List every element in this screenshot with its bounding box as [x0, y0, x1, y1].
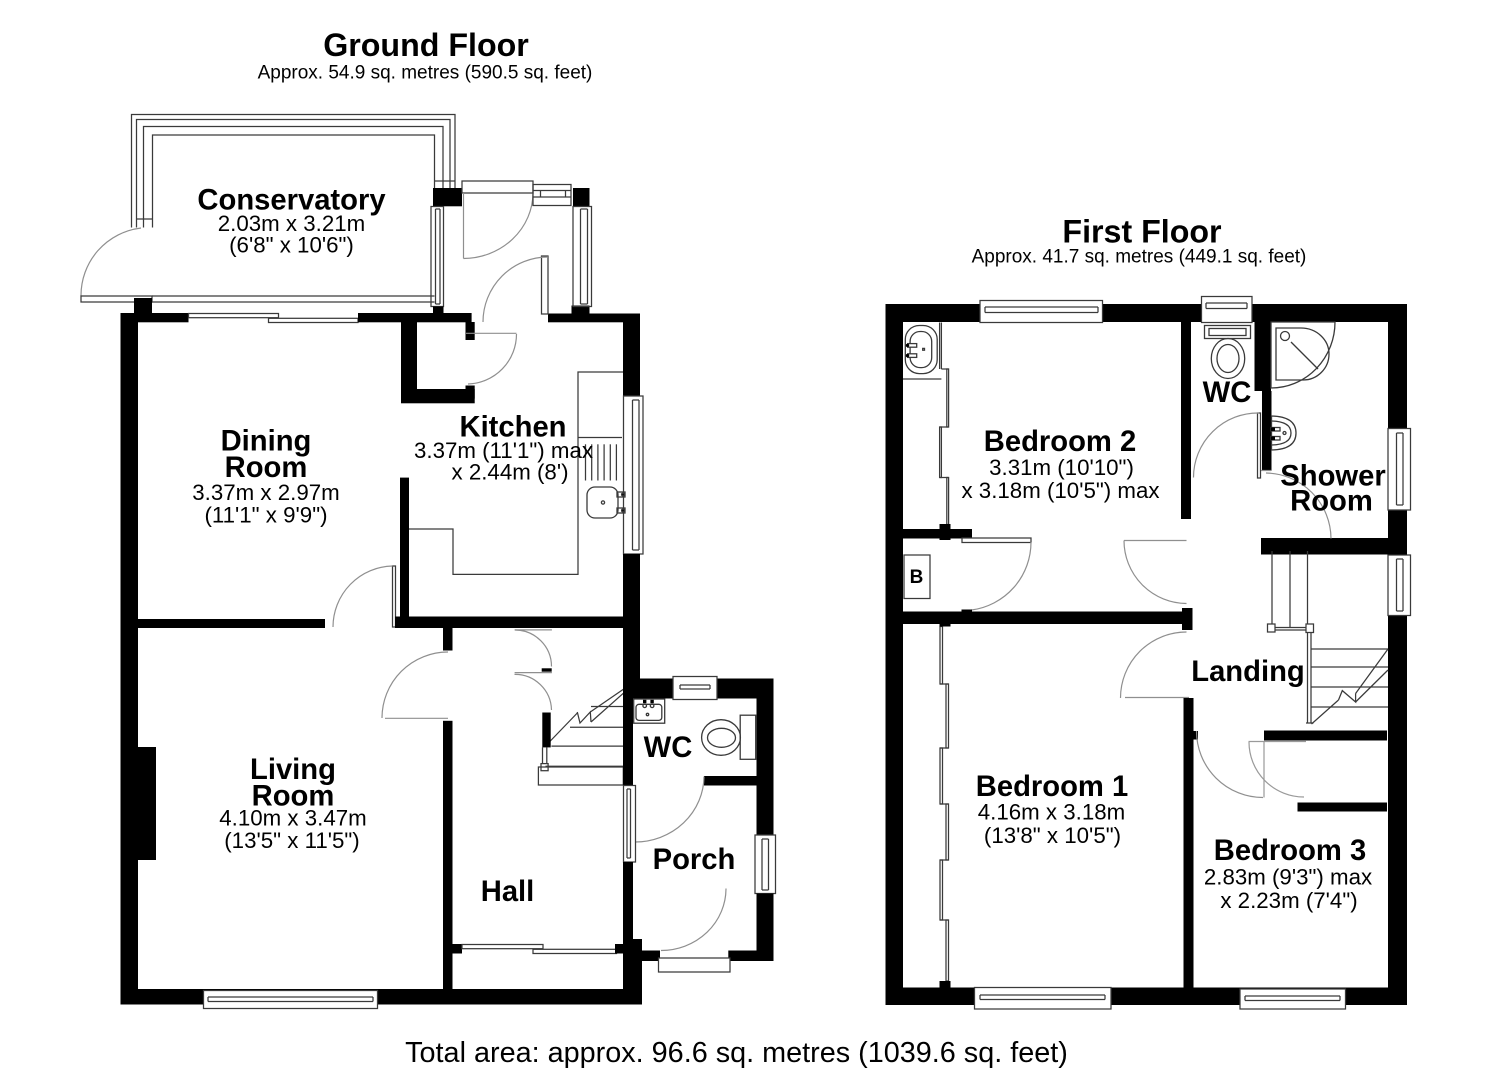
svg-text:Approx. 41.7 sq. metres (449.1: Approx. 41.7 sq. metres (449.1 sq. feet) [972, 247, 1307, 268]
svg-text:Room: Room [1290, 486, 1373, 518]
svg-text:x 3.18m (10'5") max: x 3.18m (10'5") max [961, 478, 1159, 503]
svg-text:Bedroom 3: Bedroom 3 [1214, 835, 1366, 867]
svg-text:Approx. 54.9 sq. metres (590.5: Approx. 54.9 sq. metres (590.5 sq. feet) [258, 63, 593, 84]
svg-text:x 2.44m (8'): x 2.44m (8') [451, 460, 568, 485]
svg-text:(13'8" x 10'5"): (13'8" x 10'5") [984, 823, 1121, 848]
svg-text:First Floor: First Floor [1062, 214, 1222, 250]
svg-text:4.10m x 3.47m: 4.10m x 3.47m [219, 806, 366, 831]
svg-text:Total area: approx. 96.6 sq. m: Total area: approx. 96.6 sq. metres (103… [405, 1037, 1068, 1069]
svg-text:B: B [910, 567, 924, 588]
svg-text:x 2.23m (7'4"): x 2.23m (7'4") [1220, 888, 1357, 913]
svg-text:WC: WC [1203, 377, 1252, 409]
svg-text:2.83m (9'3") max: 2.83m (9'3") max [1204, 865, 1372, 890]
svg-text:Ground Floor: Ground Floor [323, 27, 529, 63]
svg-text:WC: WC [644, 732, 693, 764]
svg-text:Hall: Hall [481, 876, 535, 908]
svg-text:(11'1" x 9'9"): (11'1" x 9'9") [204, 503, 327, 528]
svg-text:Porch: Porch [653, 844, 736, 876]
svg-text:(13'5" x 11'5"): (13'5" x 11'5") [224, 828, 359, 853]
svg-text:Landing: Landing [1191, 656, 1305, 688]
svg-text:3.31m (10'10"): 3.31m (10'10") [989, 455, 1134, 480]
svg-text:Bedroom 2: Bedroom 2 [984, 426, 1136, 458]
svg-text:3.37m x 2.97m: 3.37m x 2.97m [192, 480, 339, 505]
svg-text:(6'8" x 10'6"): (6'8" x 10'6") [229, 233, 354, 258]
svg-text:4.16m x 3.18m: 4.16m x 3.18m [978, 800, 1125, 825]
svg-text:Bedroom 1: Bedroom 1 [976, 771, 1128, 803]
